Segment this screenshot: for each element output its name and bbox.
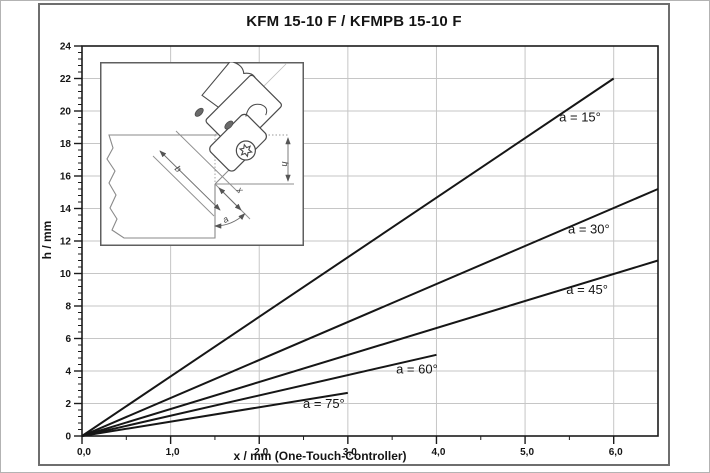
x-tick-label: 2,0 xyxy=(254,447,268,458)
dim-h-label: h xyxy=(280,161,290,166)
y-tick-label: 4 xyxy=(65,367,71,378)
x-tick-label: 5,0 xyxy=(520,447,534,458)
series-label-15deg: a = 15° xyxy=(559,110,601,125)
y-tick-label: 18 xyxy=(60,139,72,150)
y-tick-label: 6 xyxy=(65,334,71,345)
y-tick-label: 24 xyxy=(60,42,72,53)
x-tick-label: 6,0 xyxy=(609,447,623,458)
y-tick-label: 22 xyxy=(60,74,72,85)
series-label-75deg: a = 75° xyxy=(303,396,345,411)
y-tick-label: 0 xyxy=(65,432,71,443)
series-label-30deg: a = 30° xyxy=(568,222,610,237)
y-tick-label: 10 xyxy=(60,269,72,280)
y-tick-label: 12 xyxy=(60,237,72,248)
x-tick-label: 3,0 xyxy=(343,447,357,458)
inset-frame xyxy=(101,63,304,246)
catalog-figure-page: KFM 15-10 F / KFMPB 15-10 F h / mm x / m… xyxy=(0,0,710,473)
x-tick-label: 1,0 xyxy=(166,447,180,458)
series-label-45deg: a = 45° xyxy=(566,282,608,297)
y-tick-label: 20 xyxy=(60,107,72,118)
y-tick-label: 14 xyxy=(60,204,72,215)
x-tick-label: 4,0 xyxy=(432,447,446,458)
y-tick-label: 16 xyxy=(60,172,72,183)
y-tick-label: 8 xyxy=(65,302,71,313)
series-label-60deg: a = 60° xyxy=(396,361,438,376)
x-tick-label: 0,0 xyxy=(77,447,91,458)
y-tick-label: 2 xyxy=(65,399,71,410)
technical-drawing-inset: b x h a xyxy=(100,62,304,246)
